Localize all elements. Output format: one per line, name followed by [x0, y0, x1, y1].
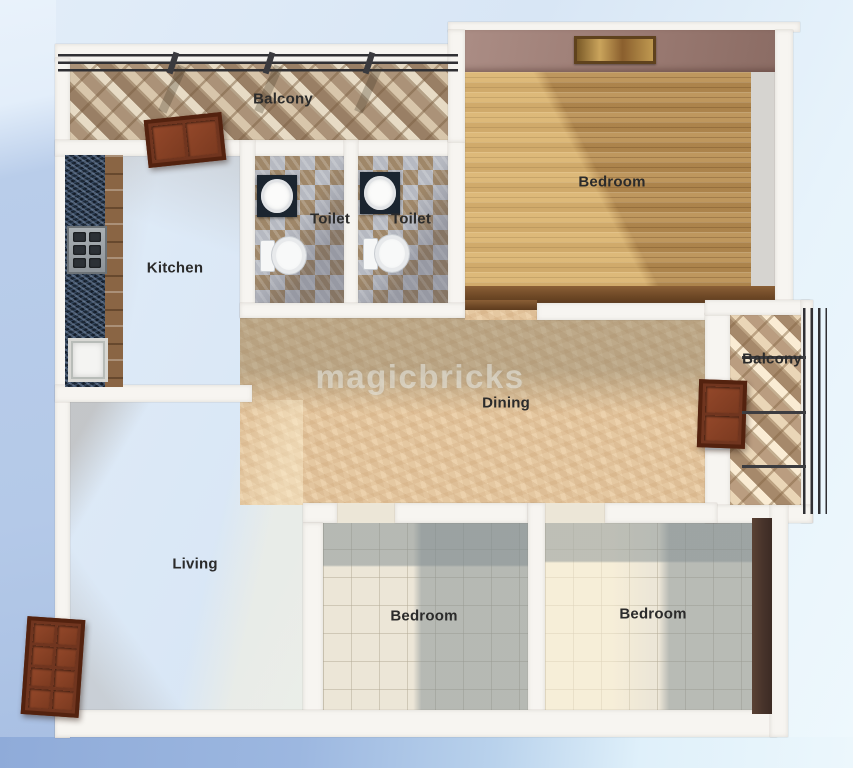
wall-bedroom-right: [775, 30, 793, 315]
room-label-living: Living: [172, 556, 217, 573]
washbasin-bowl: [364, 176, 396, 210]
floor-bedroom-bottom-right-entry: [545, 503, 605, 523]
room-label-kitchen: Kitchen: [147, 260, 203, 277]
balcony-door-top: [144, 112, 227, 168]
railing-stub: [742, 465, 806, 468]
wall-bedroom-bottom: [537, 303, 717, 320]
washbasin-toilet-right: [360, 172, 400, 214]
room-label-dining: Dining: [482, 395, 530, 412]
wc-toilet-left: [260, 236, 306, 274]
background-bottom-strip: [0, 737, 853, 768]
railing-stub: [742, 411, 806, 414]
wall-balcony-bottom-right: [222, 140, 460, 156]
stove-burner: [73, 245, 86, 255]
wall-toilet-left-side: [240, 140, 255, 318]
gas-stove: [67, 226, 107, 274]
wall-kitchen-bottom: [55, 385, 252, 402]
wall-bedroom-br-dark: [752, 518, 772, 714]
kitchen-sink: [68, 338, 108, 382]
room-label-toilet-right: Toilet: [391, 211, 431, 228]
wall-balcony-right-top: [705, 300, 810, 315]
room-label-bedroom-master: Bedroom: [578, 174, 645, 191]
stove-burner: [89, 232, 102, 242]
stove-burner: [89, 245, 102, 255]
stove-burner: [73, 258, 86, 268]
balcony-railing-right: [803, 308, 827, 514]
room-label-balcony-top: Balcony: [253, 91, 313, 108]
wall-right-outer-bottom: [770, 505, 788, 737]
room-label-bedroom-bottom-right: Bedroom: [619, 606, 686, 623]
watermark: magicbricks: [315, 358, 524, 396]
wall-toilet-right-side: [448, 140, 465, 318]
wall-toilet-divider: [344, 140, 358, 318]
room-label-toilet-left: Toilet: [310, 211, 350, 228]
floor-bedroom-bottom-left-entry: [337, 503, 395, 523]
balcony-railing-top: [58, 54, 458, 76]
stove-burner: [89, 258, 102, 268]
door-panels: [704, 386, 740, 441]
wall-toilet-bottom: [240, 303, 465, 318]
wall-stub-bedroom-bl: [303, 503, 337, 523]
wall-bedroom-left: [448, 30, 465, 142]
floor-plan-canvas: Balcony Kitchen Toilet Toilet Bedroom Ba…: [0, 0, 853, 768]
wall-bottom-outer: [55, 710, 777, 737]
washbasin-toilet-left: [257, 175, 297, 217]
entrance-door: [21, 616, 86, 718]
washbasin-bowl: [261, 179, 293, 213]
room-label-bedroom-bottom-left: Bedroom: [390, 608, 457, 625]
balcony-door-right: [697, 379, 747, 449]
room-label-balcony-right: Balcony: [742, 351, 802, 368]
door-panels: [28, 624, 78, 711]
wall-bedroom-divider: [528, 503, 545, 735]
wc-bowl: [374, 234, 410, 273]
wall-dining-right-upper: [705, 313, 730, 383]
wall-bedroom-bl-top: [395, 503, 528, 523]
stove-burner: [73, 232, 86, 242]
wall-living-bedroom-divider: [303, 523, 323, 735]
picture-frame-bedroom: [574, 36, 656, 64]
wc-bowl: [271, 236, 307, 275]
wall-balcony-bottom-left: [55, 140, 148, 156]
bedroom-door-threshold: [465, 300, 537, 310]
door-panels: [151, 120, 218, 161]
wc-toilet-right: [363, 234, 409, 272]
wall-bedroom-br-top: [605, 503, 717, 523]
